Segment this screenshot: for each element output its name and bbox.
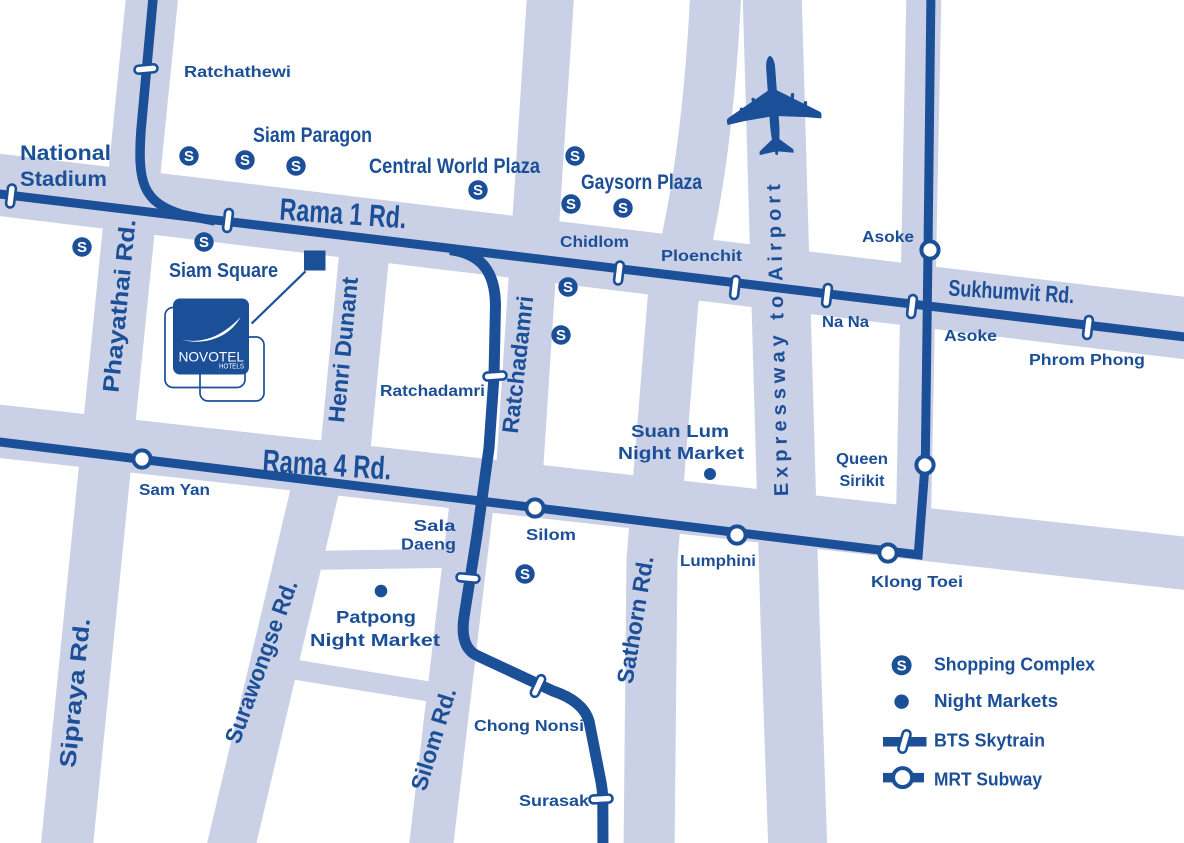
svg-text:BTS Skytrain: BTS Skytrain (934, 730, 1045, 751)
svg-text:Sala: Sala (414, 518, 456, 535)
svg-text:Siam Paragon: Siam Paragon (253, 124, 372, 147)
svg-text:Asoke: Asoke (944, 328, 997, 345)
svg-text:S: S (556, 327, 566, 344)
svg-text:Queen: Queen (836, 451, 888, 468)
svg-text:S: S (520, 566, 530, 583)
svg-text:Patpong: Patpong (336, 607, 416, 627)
svg-text:Night Market: Night Market (310, 630, 440, 650)
svg-text:Lumphini: Lumphini (680, 553, 756, 570)
svg-text:S: S (897, 658, 907, 675)
svg-text:Siam Square: Siam Square (169, 259, 278, 282)
svg-text:Ratchadamri: Ratchadamri (380, 383, 485, 400)
svg-text:S: S (291, 158, 301, 175)
svg-text:S: S (563, 279, 573, 296)
svg-text:S: S (570, 148, 580, 165)
svg-text:Silom: Silom (526, 527, 576, 544)
svg-text:S: S (77, 239, 87, 256)
svg-text:Chidlom: Chidlom (560, 234, 629, 251)
svg-text:Phrom Phong: Phrom Phong (1029, 352, 1145, 369)
svg-text:NOVOTEL: NOVOTEL (179, 348, 245, 364)
svg-text:Night Markets: Night Markets (934, 690, 1058, 711)
svg-text:Surasak: Surasak (519, 793, 589, 810)
svg-text:Ratchathewi: Ratchathewi (184, 64, 291, 81)
svg-text:MRT Subway: MRT Subway (934, 769, 1043, 790)
svg-text:S: S (199, 234, 209, 251)
svg-text:Klong Toei: Klong Toei (871, 574, 963, 591)
svg-text:Sirikit: Sirikit (840, 473, 885, 490)
svg-text:Central World Plaza: Central World Plaza (369, 155, 540, 178)
svg-text:S: S (566, 196, 576, 213)
svg-text:Ploenchit: Ploenchit (661, 248, 742, 265)
svg-text:Sam Yan: Sam Yan (139, 482, 210, 499)
svg-text:Shopping Complex: Shopping Complex (934, 654, 1096, 675)
svg-text:HOTELS: HOTELS (219, 363, 244, 370)
svg-text:Gaysorn Plaza: Gaysorn Plaza (581, 171, 702, 194)
svg-text:Asoke: Asoke (862, 229, 914, 246)
svg-text:Chong Nonsi: Chong Nonsi (474, 718, 584, 735)
svg-text:National: National (20, 142, 111, 165)
svg-text:Suan Lum: Suan Lum (631, 421, 729, 441)
svg-text:Daeng: Daeng (401, 537, 456, 554)
svg-text:Na Na: Na Na (822, 314, 869, 331)
svg-text:S: S (473, 182, 483, 199)
svg-text:S: S (240, 152, 250, 169)
svg-text:Night Market: Night Market (618, 443, 744, 463)
svg-text:S: S (184, 148, 194, 165)
svg-text:Stadium: Stadium (20, 168, 107, 191)
svg-text:S: S (618, 200, 628, 217)
